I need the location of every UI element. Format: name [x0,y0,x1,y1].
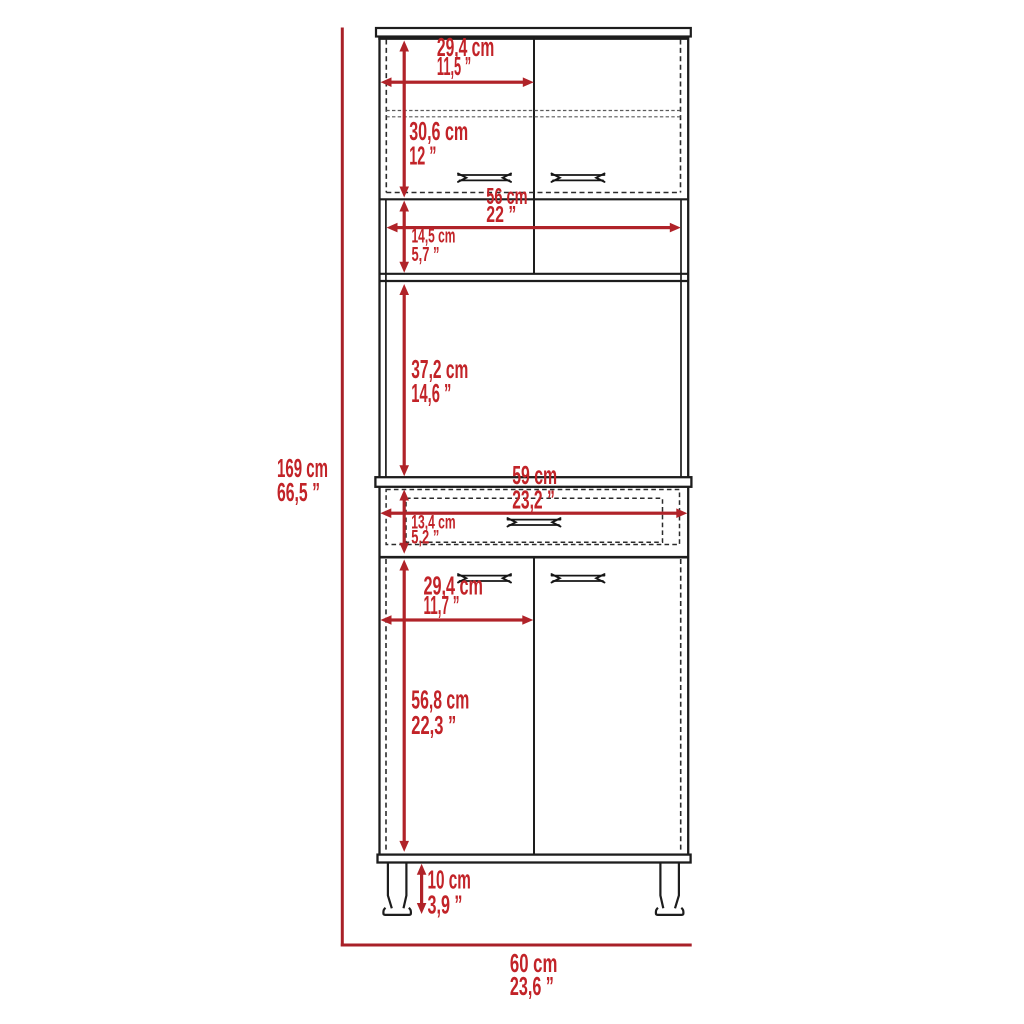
svg-text:3,9 ”: 3,9 ” [428,889,463,919]
svg-text:14,6 ”: 14,6 ” [411,380,451,408]
svg-text:5,2 ”: 5,2 ” [411,527,439,548]
svg-text:12 ”: 12 ” [409,142,436,170]
svg-text:22 ”: 22 ” [486,202,516,228]
svg-text:5,7 ”: 5,7 ” [412,243,440,266]
svg-text:23,2 ”: 23,2 ” [512,485,555,514]
svg-text:23,6 ”: 23,6 ” [510,971,554,1001]
svg-text:66,5 ”: 66,5 ” [277,478,320,507]
svg-text:11,7 ”: 11,7 ” [424,591,460,620]
svg-text:22,3 ”: 22,3 ” [411,710,456,740]
svg-text:11,5 ”: 11,5 ” [437,52,471,81]
